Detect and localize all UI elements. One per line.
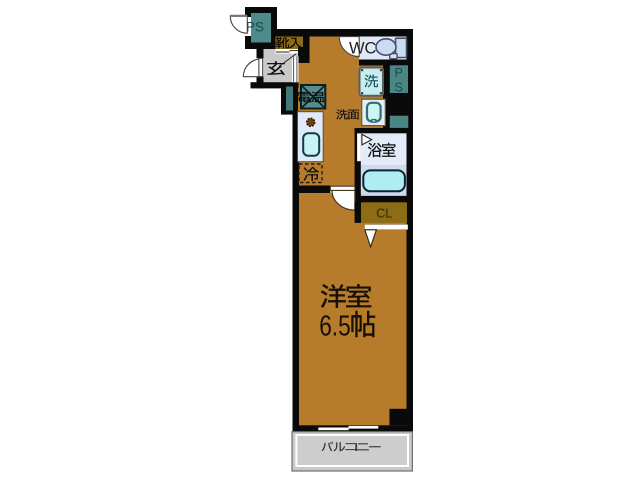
svg-text:P: P [395,66,403,80]
svg-text:S: S [395,80,403,94]
svg-text:WC: WC [349,40,377,58]
svg-text:PS: PS [246,19,264,34]
svg-text:6.5: 6.5 [319,309,351,341]
svg-text:CL: CL [376,206,392,220]
